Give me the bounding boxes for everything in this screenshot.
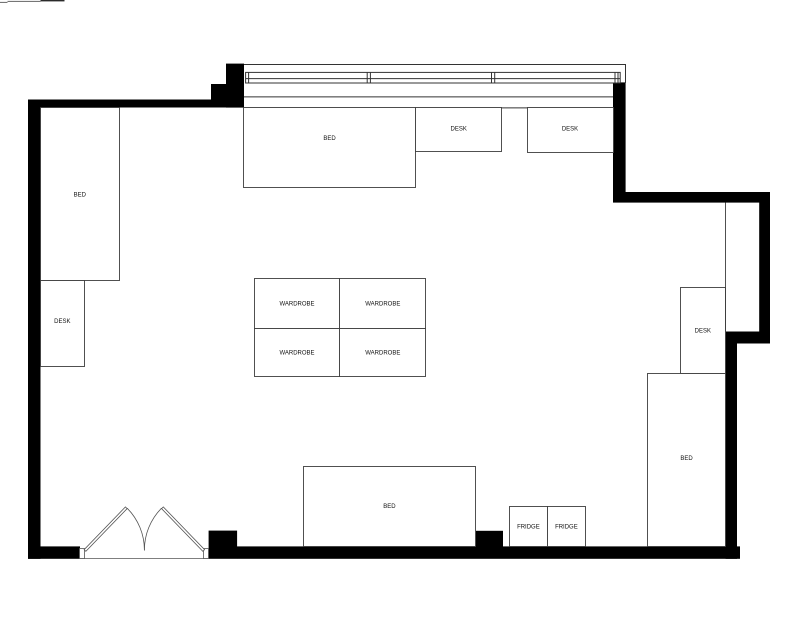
svg-text:WARDROBE: WARDROBE bbox=[365, 351, 400, 357]
svg-text:DESK: DESK bbox=[695, 329, 711, 335]
svg-text:DESK: DESK bbox=[562, 126, 578, 132]
svg-text:WARDROBE: WARDROBE bbox=[279, 351, 314, 357]
svg-text:FRIDGE: FRIDGE bbox=[517, 525, 540, 531]
svg-text:BED: BED bbox=[383, 504, 396, 510]
svg-text:FRIDGE: FRIDGE bbox=[555, 525, 578, 531]
svg-text:BED: BED bbox=[323, 136, 336, 142]
svg-text:DESK: DESK bbox=[451, 126, 467, 132]
svg-text:WARDROBE: WARDROBE bbox=[365, 302, 400, 308]
svg-text:BED: BED bbox=[74, 192, 87, 198]
svg-text:BED: BED bbox=[680, 456, 693, 462]
svg-text:WARDROBE: WARDROBE bbox=[279, 302, 314, 308]
svg-text:DESK: DESK bbox=[54, 319, 70, 325]
